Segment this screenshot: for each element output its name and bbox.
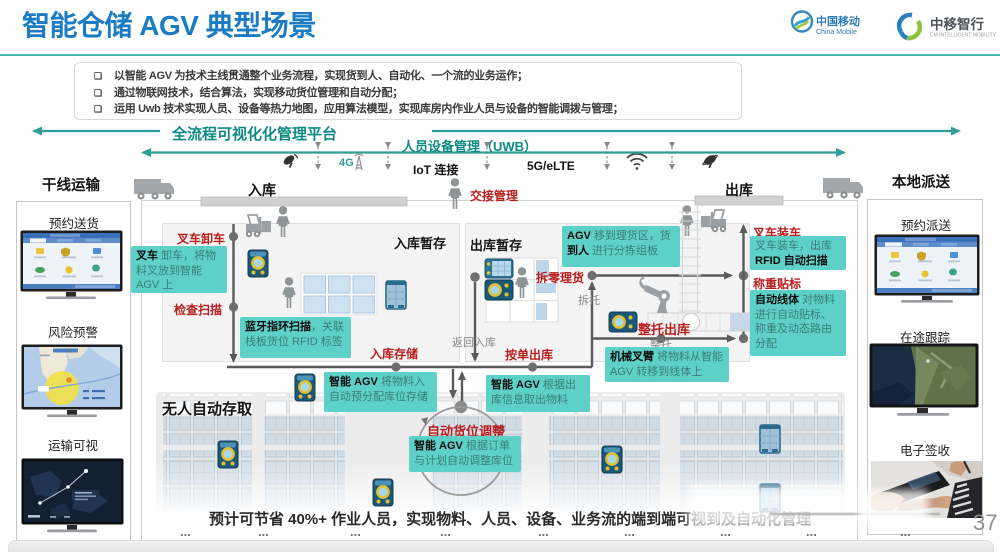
svg-text:4G: 4G <box>339 157 354 169</box>
